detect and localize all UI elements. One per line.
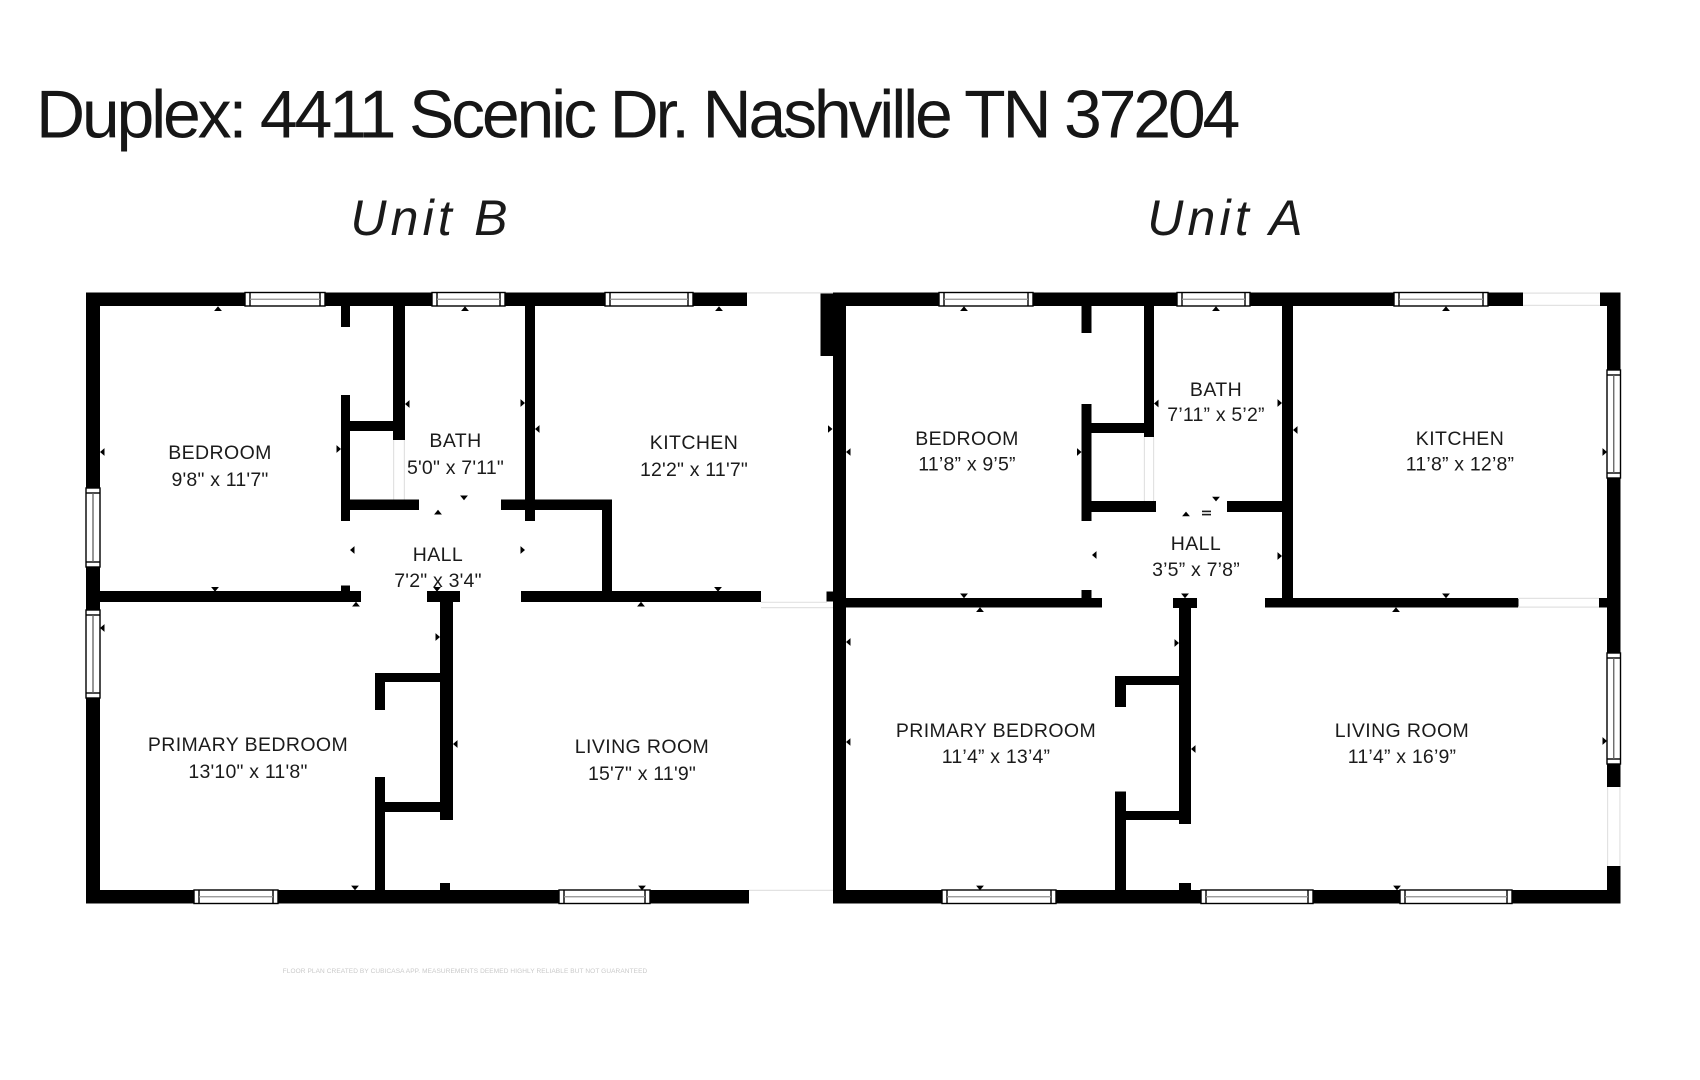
svg-text:KITCHEN: KITCHEN — [650, 432, 738, 454]
svg-text:PRIMARY BEDROOM: PRIMARY BEDROOM — [896, 720, 1096, 742]
svg-text:LIVING ROOM: LIVING ROOM — [575, 736, 709, 758]
svg-text:11’4” x 13’4”: 11’4” x 13’4” — [942, 746, 1050, 768]
svg-text:BATH: BATH — [1190, 379, 1242, 401]
svg-text:HALL: HALL — [1171, 533, 1221, 555]
svg-text:Unit B: Unit B — [350, 190, 511, 246]
svg-text:11’8” x 9’5”: 11’8” x 9’5” — [918, 454, 1015, 476]
svg-text:BEDROOM: BEDROOM — [168, 442, 272, 464]
svg-text:13'10" x 11'8": 13'10" x 11'8" — [188, 761, 307, 783]
svg-text:KITCHEN: KITCHEN — [1416, 428, 1504, 450]
svg-text:BATH: BATH — [429, 430, 481, 452]
svg-text:11’4” x 16’9”: 11’4” x 16’9” — [1348, 746, 1456, 768]
svg-text:Unit A: Unit A — [1147, 190, 1307, 246]
svg-text:12'2" x 11'7": 12'2" x 11'7" — [640, 459, 748, 481]
svg-text:3’5” x 7’8”: 3’5” x 7’8” — [1152, 559, 1240, 581]
svg-text:15'7" x 11'9": 15'7" x 11'9" — [588, 763, 696, 785]
svg-text:11’8” x 12’8”: 11’8” x 12’8” — [1406, 454, 1514, 476]
svg-text:5'0" x 7'11": 5'0" x 7'11" — [407, 457, 504, 479]
svg-text:LIVING ROOM: LIVING ROOM — [1335, 720, 1469, 742]
svg-text:HALL: HALL — [413, 544, 463, 566]
svg-text:BEDROOM: BEDROOM — [915, 428, 1019, 450]
svg-text:7'2" x 3'4": 7'2" x 3'4" — [394, 570, 481, 592]
svg-text:9'8" x 11'7": 9'8" x 11'7" — [171, 469, 268, 491]
svg-text:FLOOR PLAN CREATED BY CUBICASA: FLOOR PLAN CREATED BY CUBICASA APP. MEAS… — [283, 968, 648, 975]
svg-text:PRIMARY BEDROOM: PRIMARY BEDROOM — [148, 734, 348, 756]
svg-text:Duplex: 4411 Scenic Dr. Nashvi: Duplex: 4411 Scenic Dr. Nashville TN 372… — [36, 77, 1239, 153]
svg-text:7’11” x 5’2”: 7’11” x 5’2” — [1167, 404, 1264, 426]
